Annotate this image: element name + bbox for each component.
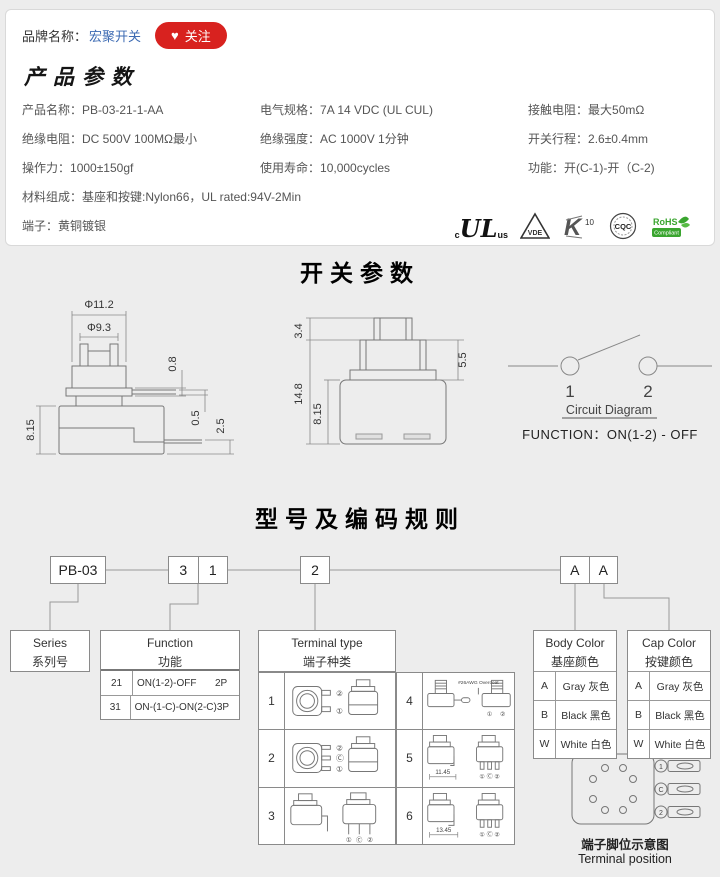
terminal-cell-2: 2 ② Ⓒ ①: [259, 730, 395, 787]
param-life: 使用寿命：10,000cycles: [260, 159, 528, 176]
svg-text:①: ①: [336, 765, 343, 774]
svg-text:1: 1: [659, 764, 663, 771]
terminal-cell-4: 4 #26AWG Overcoat ①: [397, 673, 514, 730]
svg-text:②: ②: [336, 744, 343, 753]
vde-cert-icon: VDE: [520, 212, 550, 240]
param-terminal: 端子：黄铜镀银: [22, 217, 106, 234]
body-color-row-w: WWhite 白色: [534, 729, 616, 758]
svg-text:②: ②: [336, 689, 343, 698]
rohs-cert-icon: RoHS Compliant: [650, 212, 692, 240]
svg-text:10: 10: [585, 218, 594, 227]
svg-text:Circuit Diagram: Circuit Diagram: [566, 403, 652, 417]
terminal-type-grid-right: 4 #26AWG Overcoat ①: [396, 672, 515, 845]
svg-text:Ⓒ: Ⓒ: [356, 836, 363, 843]
svg-text:②: ②: [494, 774, 499, 781]
series-cn: 系列号: [11, 653, 89, 672]
body-color-en: Body Color: [534, 634, 616, 653]
heart-icon: ♥: [171, 29, 179, 42]
svg-text:Ⓒ: Ⓒ: [336, 754, 344, 763]
function-cn: 功能: [101, 653, 239, 672]
terminal-type-en: Terminal type: [259, 634, 395, 653]
param-insulation-resistance: 绝缘电阻：DC 500V 100MΩ最小: [22, 130, 260, 147]
svg-text:CQC: CQC: [615, 222, 632, 231]
svg-text:②: ②: [367, 837, 373, 843]
body-color-cn: 基座颜色: [534, 653, 616, 672]
svg-text:①: ①: [479, 831, 484, 838]
svg-text:11.45: 11.45: [435, 769, 450, 776]
svg-text:①: ①: [486, 711, 491, 718]
cqc-cert-icon: CQC: [608, 212, 638, 240]
svg-text:0.8: 0.8: [167, 356, 179, 371]
cap-color-table: Cap Color 按键颜色 AGray 灰色 BBlack 黑色 WWhite…: [627, 630, 711, 759]
function-row-21: 21 ON(1-2)-OFF 2P: [101, 671, 239, 695]
terminal-cell-3: 3 ① Ⓒ ②: [259, 788, 395, 844]
code-box-series: PB-03: [50, 556, 106, 584]
param-travel: 开关行程：2.6±0.4mm: [528, 130, 698, 147]
svg-text:13.45: 13.45: [436, 827, 452, 834]
svg-text:5.5: 5.5: [457, 352, 469, 367]
follow-button[interactable]: ♥ 关注: [155, 22, 227, 49]
param-function: 功能：开(C-1)-开（C-2): [528, 159, 698, 176]
param-terminal-row: 端子：黄铜镀银 cULus VDE K: [22, 209, 698, 243]
cap-color-cn: 按键颜色: [628, 653, 710, 672]
terminal-cell-6: 6 13.45 ① Ⓒ ②: [397, 788, 514, 844]
svg-text:①: ①: [346, 837, 352, 843]
svg-text:2: 2: [659, 810, 663, 817]
svg-text:②: ②: [500, 711, 505, 718]
code-box-function: 31: [168, 556, 228, 584]
drawing-side-view: Φ11.2 Φ9.3 8.15 0.8 0.5 2.5: [6, 294, 258, 472]
svg-text:14.8: 14.8: [293, 383, 305, 404]
cap-color-row-a: AGray 灰色: [628, 671, 710, 700]
svg-text:2.5: 2.5: [215, 418, 227, 433]
svg-text:RoHS: RoHS: [653, 217, 678, 227]
series-en: Series: [11, 634, 89, 653]
svg-text:①: ①: [479, 774, 484, 781]
param-material: 材料组成：基座和按键:Nylon66，UL rated:94V-2Min: [22, 188, 698, 205]
param-dielectric-strength: 绝缘强度：AC 1000V 1分钟: [260, 130, 528, 147]
param-contact-resistance: 接触电阻：最大50mΩ: [528, 101, 698, 118]
code-box-terminal: 2: [300, 556, 330, 584]
svg-text:②: ②: [494, 831, 499, 838]
function-text: FUNCTION：ON(1-2) - OFF: [500, 424, 720, 443]
param-operating-force: 操作力：1000±150gf: [22, 159, 260, 176]
code-box-colors: AA: [560, 556, 618, 584]
svg-text:1: 1: [565, 382, 574, 401]
terminal-position-caption-cn: 端子脚位示意图: [535, 834, 715, 853]
function-row-31: 31 ON-(1-C)-ON(2-C) 3P: [101, 695, 239, 719]
terminal-cell-5: 5 11.45 ① Ⓒ ②: [397, 730, 514, 787]
coding-title: 型号及编码规则: [0, 500, 720, 534]
body-color-row-b: BBlack 黑色: [534, 700, 616, 729]
svg-text:8.15: 8.15: [25, 419, 37, 440]
terminal-cell-1: 1 ② ①: [259, 673, 395, 730]
cap-color-row-w: WWhite 白色: [628, 729, 710, 758]
svg-text:0.5: 0.5: [190, 410, 202, 425]
brand-link[interactable]: 宏聚开关: [89, 26, 141, 45]
switch-params-title: 开关参数: [0, 254, 720, 288]
terminal-position-caption-en: Terminal position: [535, 852, 715, 866]
brand-row: 品牌名称： 宏聚开关 ♥ 关注: [22, 22, 698, 49]
function-en: Function: [101, 634, 239, 653]
product-params-card: 品牌名称： 宏聚开关 ♥ 关注 产品参数 产品名称：PB-03-21-1-AA …: [5, 9, 715, 246]
svg-text:Ⓒ: Ⓒ: [486, 773, 492, 781]
svg-text:①: ①: [336, 707, 343, 716]
svg-text:8.15: 8.15: [312, 403, 324, 424]
svg-text:3.4: 3.4: [293, 323, 305, 338]
terminal-type-grid-left: 1 ② ① 2: [258, 672, 396, 845]
ul-cert-icon: cULus: [455, 219, 508, 239]
function-table: Function 功能 21 ON(1-2)-OFF 2P 31 ON-(1-C…: [100, 630, 240, 720]
cap-color-en: Cap Color: [628, 634, 710, 653]
svg-text:VDE: VDE: [528, 230, 543, 237]
param-product-name: 产品名称：PB-03-21-1-AA: [22, 101, 260, 118]
svg-text:C: C: [658, 787, 663, 794]
circuit-diagram: 1 2 Circuit Diagram: [500, 324, 720, 422]
follow-label: 关注: [185, 26, 211, 45]
svg-text:Φ9.3: Φ9.3: [87, 322, 111, 334]
svg-text:Φ11.2: Φ11.2: [84, 299, 113, 311]
svg-text:Compliant: Compliant: [654, 230, 679, 236]
terminal-type-cn: 端子种类: [259, 653, 395, 672]
kc-cert-icon: K 10: [562, 212, 596, 240]
product-params-title: 产品参数: [24, 61, 698, 91]
body-color-row-a: AGray 灰色: [534, 671, 616, 700]
terminal-type-header: Terminal type 端子种类: [258, 630, 396, 672]
svg-text:2: 2: [643, 382, 652, 401]
param-grid: 产品名称：PB-03-21-1-AA 电气规格：7A 14 VDC (UL CU…: [22, 95, 698, 240]
body-color-table: Body Color 基座颜色 AGray 灰色 BBlack 黑色 WWhit…: [533, 630, 617, 759]
drawing-front-view: 3.4 14.8 8.15 5.5: [268, 294, 508, 472]
series-table: Series 系列号: [10, 630, 90, 672]
svg-text:Ⓒ: Ⓒ: [486, 830, 492, 838]
svg-text:#26AWG Overcoat: #26AWG Overcoat: [458, 680, 499, 686]
param-electrical: 电气规格：7A 14 VDC (UL CUL): [260, 101, 528, 118]
brand-label: 品牌名称：: [22, 26, 87, 45]
certification-icons: cULus VDE K 10: [455, 212, 692, 240]
cap-color-row-b: BBlack 黑色: [628, 700, 710, 729]
